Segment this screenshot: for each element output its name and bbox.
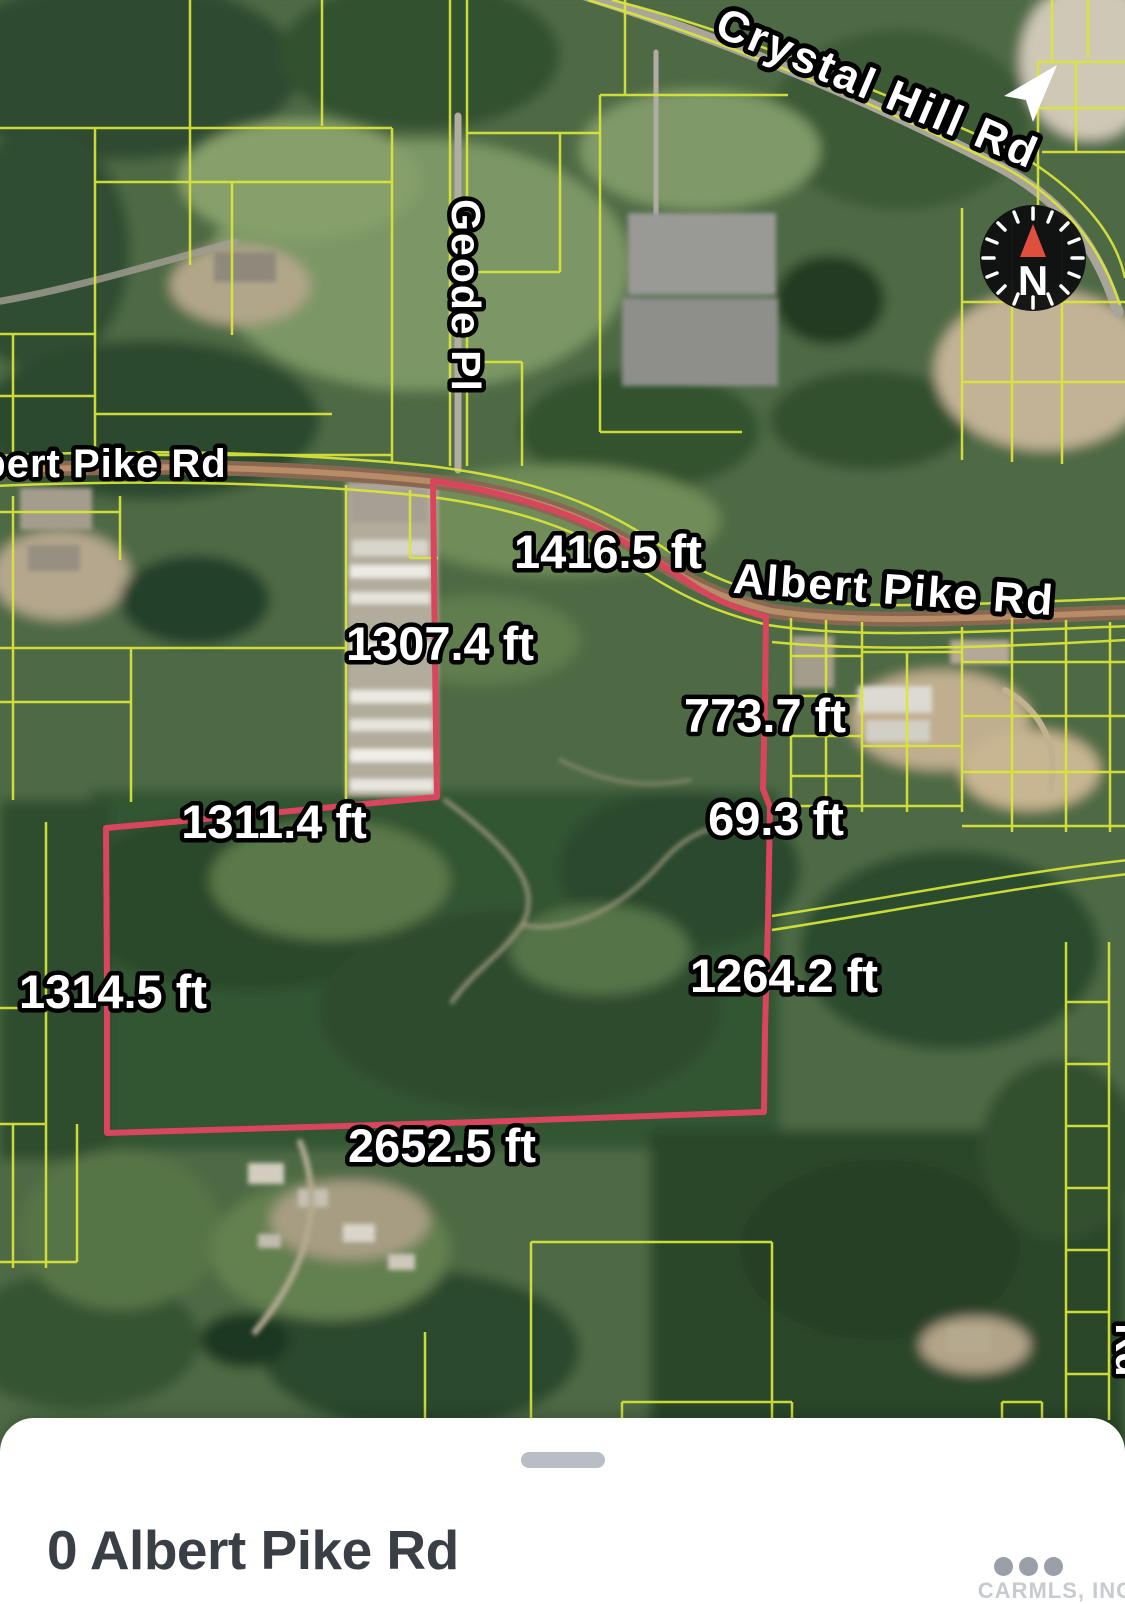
measurement-inner-west: 1307.4 ft [346,617,534,670]
page-title: 0 Albert Pike Rd [47,1518,459,1582]
ellipsis-icon [1019,1557,1038,1576]
measurement-mid: 1311.4 ft [181,795,367,848]
compass-icon[interactable]: N [980,205,1086,311]
more-options-button[interactable] [994,1557,1063,1576]
watermark: CARMLS, INC [978,1578,1125,1604]
road-label-partial-right: Rd [1107,1323,1125,1376]
compass-north-label: N [1018,257,1048,304]
measurement-east-lower: 1264.2 ft [690,949,878,1002]
app-screen: Crystal Hill Rd Geode Pl bert Pike Rd Al… [0,0,1125,1604]
measurement-south: 2652.5 ft [348,1119,536,1172]
drag-handle[interactable] [521,1452,605,1468]
measurement-north: 1416.5 ft [514,525,702,578]
road-label-albert-pike-left: bert Pike Rd [0,442,227,486]
road-label-geode-pl: Geode Pl [443,199,489,393]
measurement-east-jog: 69.3 ft [708,792,844,845]
bottom-sheet[interactable]: 0 Albert Pike Rd CARMLS, INC [0,1418,1125,1604]
ellipsis-icon [994,1557,1013,1576]
measurement-east-upper: 773.7 ft [684,689,846,742]
satellite-map[interactable]: Crystal Hill Rd Geode Pl bert Pike Rd Al… [0,0,1125,1460]
measurement-west: 1314.5 ft [19,965,207,1018]
ellipsis-icon [1044,1557,1063,1576]
